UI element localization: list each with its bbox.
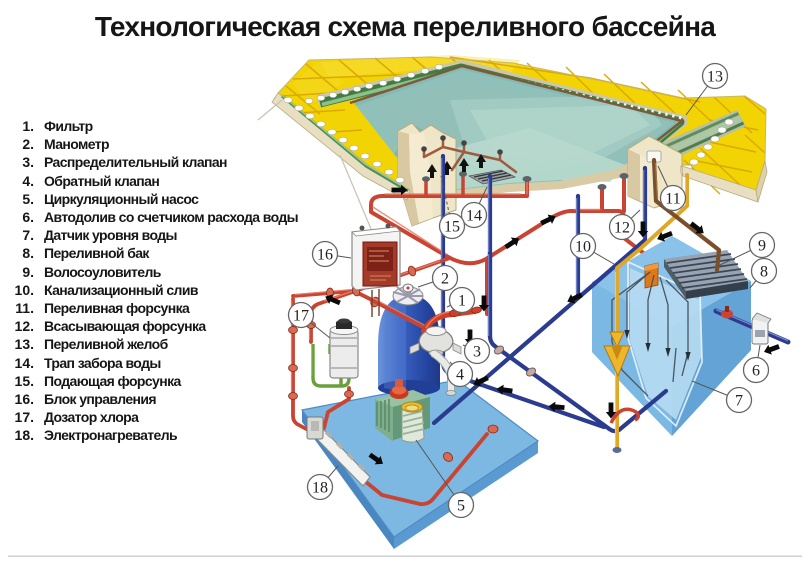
svg-text:16: 16 [317,247,333,264]
svg-text:11: 11 [665,191,680,208]
svg-text:6: 6 [752,363,760,380]
svg-text:2: 2 [441,271,449,288]
svg-text:12: 12 [614,220,630,237]
svg-text:13: 13 [707,69,723,86]
svg-text:15: 15 [444,219,460,236]
svg-text:5: 5 [457,498,465,515]
svg-text:8: 8 [760,264,768,281]
svg-text:14: 14 [466,208,482,225]
svg-text:9: 9 [758,238,766,255]
svg-text:7: 7 [735,393,743,410]
svg-text:17: 17 [293,308,309,325]
svg-text:4: 4 [456,367,464,384]
svg-text:1: 1 [458,293,466,310]
svg-text:10: 10 [575,239,591,256]
svg-text:18: 18 [312,480,328,497]
svg-text:3: 3 [473,344,481,361]
